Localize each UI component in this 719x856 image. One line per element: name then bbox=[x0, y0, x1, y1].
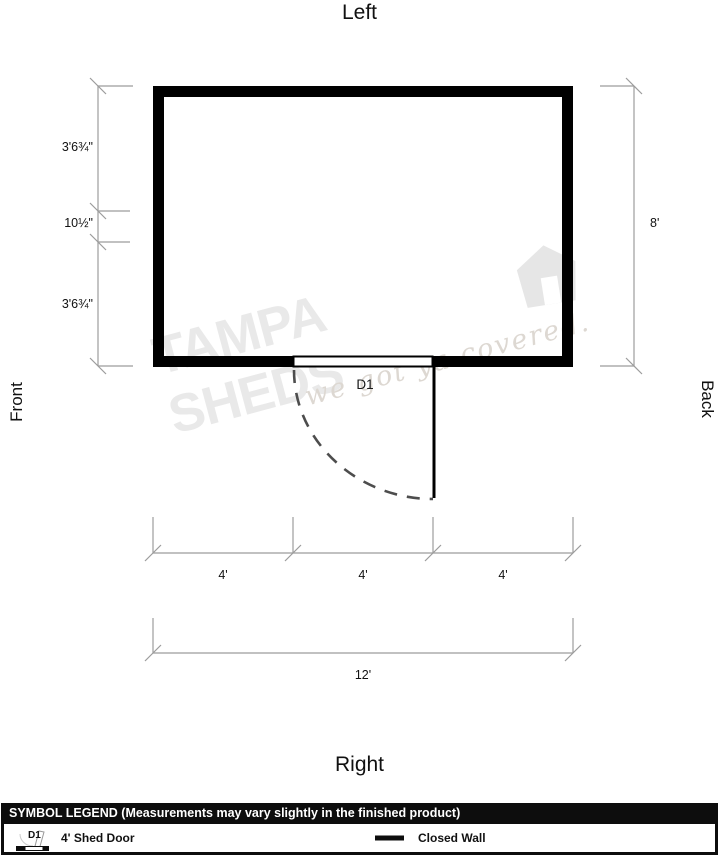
closed-wall-swatch bbox=[375, 836, 404, 841]
dimension-lines bbox=[90, 78, 642, 661]
symbol-legend: SYMBOL LEGEND (Measurements may vary sli… bbox=[1, 803, 718, 855]
shed-wall-outline bbox=[159, 92, 568, 362]
legend-door-label: 4' Shed Door bbox=[61, 831, 135, 845]
floorplan-page: Left Right Front Back TAMPA SHEDS we got… bbox=[0, 0, 719, 856]
legend-door-symbol: D1 bbox=[28, 830, 41, 841]
door-label: D1 bbox=[345, 377, 385, 392]
floorplan-drawing bbox=[0, 0, 719, 856]
shed-door-icon: D1 bbox=[13, 824, 53, 852]
legend-row: D1 4' Shed Door Closed Wall bbox=[1, 824, 718, 855]
door-panel bbox=[294, 357, 433, 367]
legend-wall-label: Closed Wall bbox=[418, 831, 486, 845]
legend-header: SYMBOL LEGEND (Measurements may vary sli… bbox=[1, 803, 718, 824]
